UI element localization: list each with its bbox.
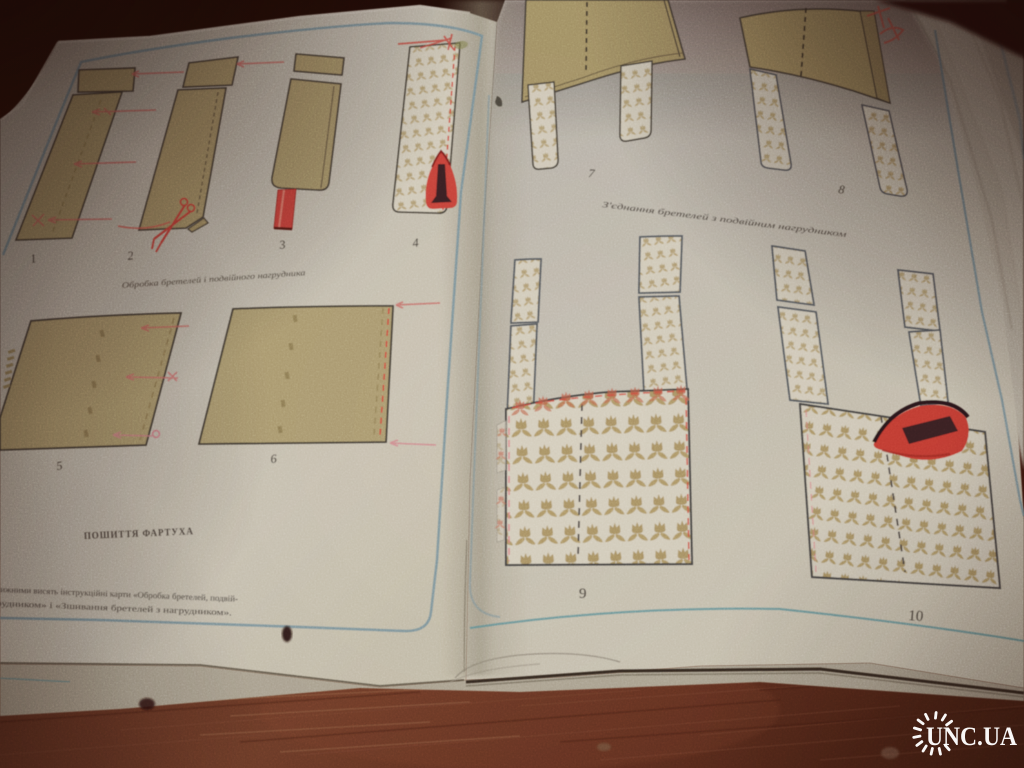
svg-text:UNC.UA: UNC.UA bbox=[926, 722, 1017, 751]
